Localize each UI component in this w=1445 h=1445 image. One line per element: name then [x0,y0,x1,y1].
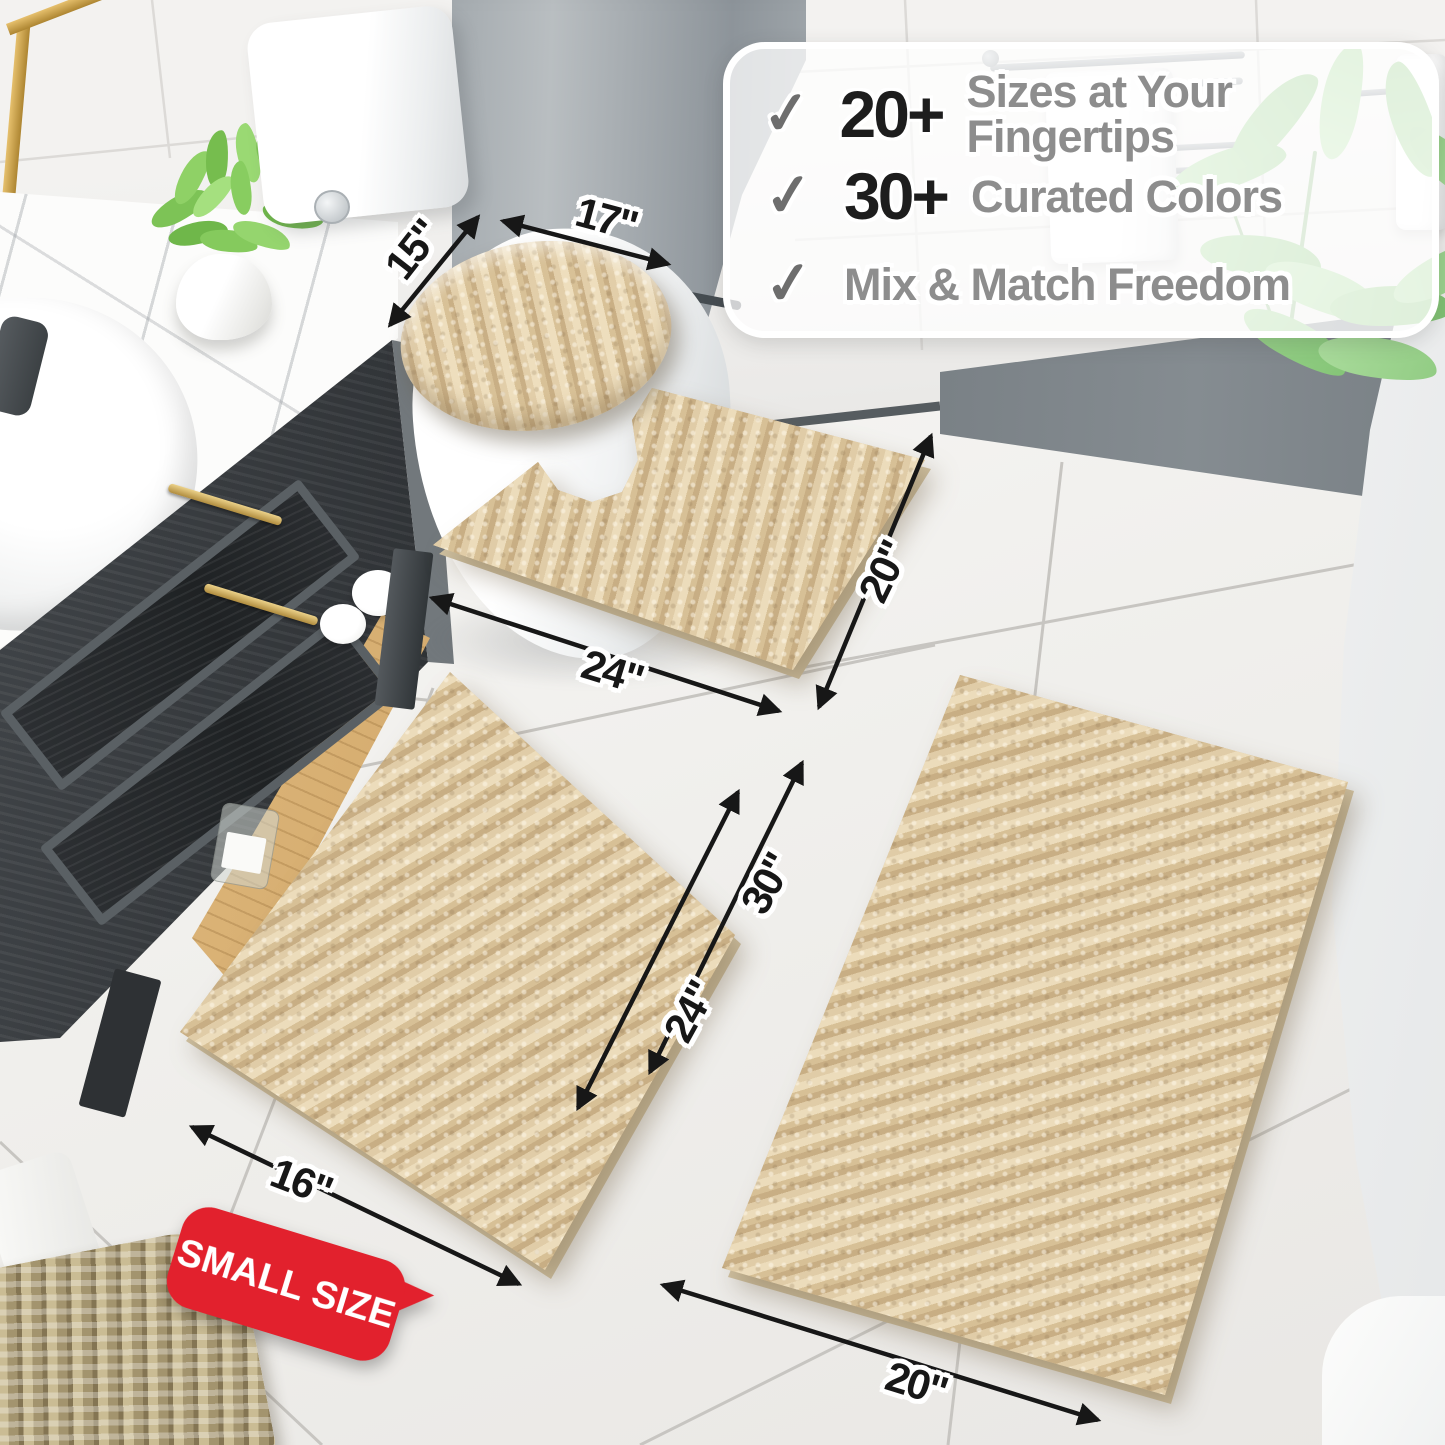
check-icon: ✓ [755,82,818,146]
feature-stat: 30+ [844,163,947,229]
bathroom-product-scene: 15" 17" 24" 20" 16" 24" 30" 20" ✓ 20+ Si… [0,0,1445,1445]
feature-label: Sizes at Your Fingertips [967,69,1417,159]
feature-label: Mix & Match Freedom [844,262,1290,307]
feature-label: Curated Colors [971,174,1282,219]
check-icon: ✓ [755,164,823,228]
feature-info-box: ✓ 20+ Sizes at Your Fingertips ✓ 30+ Cur… [723,42,1439,338]
feature-row: ✓ 30+ Curated Colors [758,159,1416,233]
check-icon: ✓ [755,252,823,316]
feature-stat: 20+ [840,81,943,147]
feature-row: ✓ Mix & Match Freedom [758,247,1416,321]
feature-row: ✓ 20+ Sizes at Your Fingertips [758,77,1416,151]
